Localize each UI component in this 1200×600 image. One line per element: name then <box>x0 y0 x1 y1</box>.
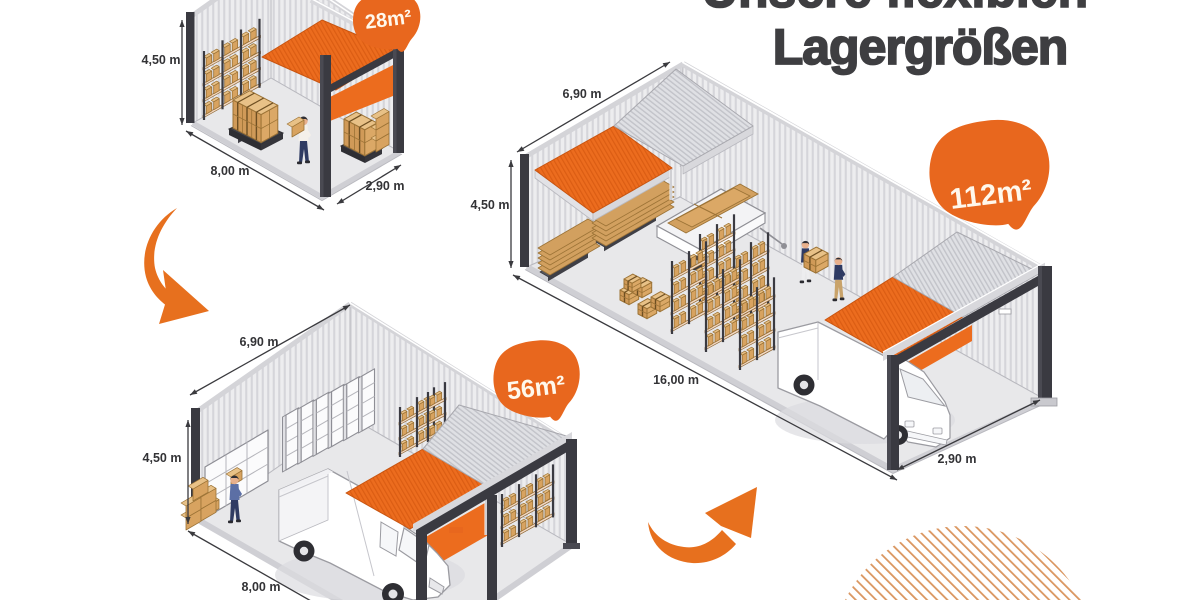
svg-text:2,90 m: 2,90 m <box>366 179 405 193</box>
svg-text:8,00 m: 8,00 m <box>242 580 281 594</box>
svg-text:8,00 m: 8,00 m <box>211 164 250 178</box>
svg-text:16,00 m: 16,00 m <box>653 373 699 387</box>
svg-text:4,50 m: 4,50 m <box>471 198 510 212</box>
svg-text:2,90 m: 2,90 m <box>938 452 977 466</box>
svg-text:4,50 m: 4,50 m <box>143 451 182 465</box>
svg-text:4,50 m: 4,50 m <box>142 53 181 67</box>
svg-text:Lagergrößen: Lagergrößen <box>773 19 1068 75</box>
svg-text:6,90 m: 6,90 m <box>240 335 279 349</box>
svg-text:6,90 m: 6,90 m <box>563 87 602 101</box>
svg-text:Unsere flexiblen: Unsere flexiblen <box>702 0 1088 18</box>
